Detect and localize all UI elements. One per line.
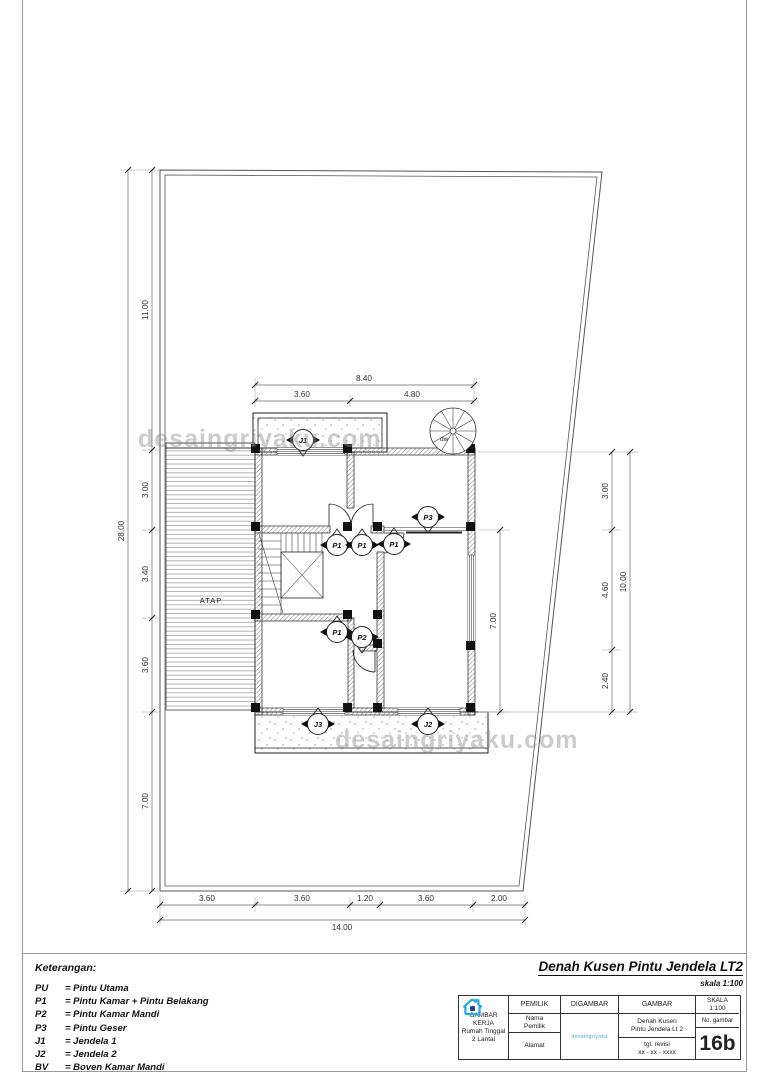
svg-text:7.00: 7.00 <box>141 793 150 809</box>
logo-text: desaingriyaku <box>571 1034 607 1040</box>
dimension-right: 3.00 4.60 2.40 10.00 <box>478 449 638 715</box>
building-walls <box>255 448 475 715</box>
legend-code: P3 <box>35 1022 65 1035</box>
owner-name-cell: Nama Pemilik <box>509 1014 560 1033</box>
svg-text:P1: P1 <box>332 541 341 550</box>
legend-item: P1= Pintu Kamar + Pintu Belakang <box>35 995 209 1008</box>
title-block-owner: PEMILIK Nama Pemilik Alamat <box>509 996 561 1059</box>
dimension-left: 28.00 11.00 3.00 3.40 3.60 7.00 <box>117 167 160 894</box>
watermark-text: desaingriyaku.com <box>335 726 578 754</box>
dimension-top: 8.40 3.60 4.80 <box>252 374 477 407</box>
drawing-sheet: { "page": { "watermark": "desaingriyaku.… <box>0 0 768 1086</box>
atap-label: ATAP <box>200 596 222 605</box>
legend-def: = Pintu Utama <box>65 982 129 995</box>
svg-text:3.00: 3.00 <box>141 482 150 498</box>
column-nodes <box>251 444 475 712</box>
drawing-scale: skala 1:100 <box>538 979 743 988</box>
dimension-bottom: 3.60 3.60 1.20 3.60 2.00 14.00 <box>157 894 528 932</box>
svg-text:7.00: 7.00 <box>489 613 498 629</box>
legend-def: = Jendela 1 <box>65 1035 117 1048</box>
title-block-number: SKALA 1:100 No. gambar 16b <box>696 996 739 1059</box>
svg-text:3.60: 3.60 <box>418 894 434 903</box>
title-block-drafter: DIGAMBAR desaingriyaku <box>561 996 619 1059</box>
marker-p3: P3 <box>411 507 445 534</box>
legend-def: = Pintu Geser <box>65 1022 127 1035</box>
svg-text:P1: P1 <box>332 628 341 637</box>
svg-text:10.00: 10.00 <box>619 571 628 592</box>
legend-code: BV <box>35 1061 65 1074</box>
legend-item: P2= Pintu Kamar Mandi <box>35 1008 209 1021</box>
scale-cell: SKALA 1:100 <box>696 996 739 1014</box>
legend-code: J1 <box>35 1035 65 1048</box>
legend-item: BV= Boven Kamar Mandi <box>35 1061 209 1074</box>
svg-text:3.60: 3.60 <box>294 390 310 399</box>
svg-text:3.40: 3.40 <box>141 566 150 582</box>
legend-def: = Pintu Kamar Mandi <box>65 1008 159 1021</box>
svg-text:3.00: 3.00 <box>601 483 610 499</box>
svg-text:4.80: 4.80 <box>404 390 420 399</box>
legend-def: = Pintu Kamar + Pintu Belakang <box>65 995 209 1008</box>
gambar-header: GAMBAR <box>619 996 695 1014</box>
legend-title: Keterangan: <box>35 962 209 974</box>
svg-text:28.00: 28.00 <box>117 520 126 541</box>
company-logo: desaingriyaku <box>561 1014 618 1059</box>
svg-text:J3: J3 <box>314 720 323 729</box>
drawing-name-cell: Denah Kusen Pintu Jendela Lt 2 <box>619 1014 695 1038</box>
legend-code: P1 <box>35 995 65 1008</box>
digambar-header: DIGAMBAR <box>561 996 618 1014</box>
watermark-text: desaingriyaku.com <box>138 425 381 453</box>
svg-text:4.60: 4.60 <box>601 582 610 598</box>
stairwell <box>258 533 323 614</box>
dimension-mid-right: 7.00 <box>478 527 510 715</box>
title-block-drawing: GAMBAR Denah Kusen Pintu Jendela Lt 2 tg… <box>619 996 696 1059</box>
svg-text:1.20: 1.20 <box>357 894 373 903</box>
project-line: 2 Lantai <box>472 1036 495 1044</box>
sheet-number: 16b <box>696 1028 739 1059</box>
pemilik-header: PEMILIK <box>509 996 560 1014</box>
svg-text:P2: P2 <box>357 633 367 642</box>
house-logo-icon <box>459 996 486 1019</box>
sheet-divider-line <box>22 953 747 954</box>
svg-text:3.60: 3.60 <box>294 894 310 903</box>
legend-def: = Boven Kamar Mandi <box>65 1061 165 1074</box>
svg-text:11.00: 11.00 <box>141 300 150 320</box>
spiral-staircase: dw <box>430 408 476 454</box>
floor-plan-canvas: ATAP <box>0 0 768 953</box>
svg-text:14.00: 14.00 <box>332 923 353 932</box>
svg-text:2.40: 2.40 <box>601 673 610 689</box>
svg-text:2.00: 2.00 <box>491 894 507 903</box>
svg-text:3.60: 3.60 <box>199 894 215 903</box>
legend-item: J2= Jendela 2 <box>35 1048 209 1061</box>
title-block: GAMBAR KERJA Rumah Tinggal 2 Lantai PEMI… <box>458 995 741 1060</box>
sheet-number-label: No. gambar <box>696 1014 739 1028</box>
spiral-stair-label: dw <box>440 436 449 443</box>
svg-text:3.60: 3.60 <box>141 657 150 673</box>
windows <box>277 448 475 715</box>
drawing-title-area: Denah Kusen Pintu Jendela LT2 skala 1:10… <box>538 958 743 988</box>
svg-text:P1: P1 <box>389 540 398 549</box>
legend-code: J2 <box>35 1048 65 1061</box>
legend-code: PU <box>35 982 65 995</box>
legend: Keterangan: PU= Pintu Utama P1= Pintu Ka… <box>35 962 209 1074</box>
project-line: Rumah Tinggal <box>462 1028 506 1036</box>
svg-text:8.40: 8.40 <box>356 374 372 383</box>
svg-text:P3: P3 <box>423 513 433 522</box>
atap-roof-area: ATAP <box>166 443 255 710</box>
svg-text:P1: P1 <box>357 541 366 550</box>
legend-item: PU= Pintu Utama <box>35 982 209 995</box>
legend-item: P3= Pintu Geser <box>35 1022 209 1035</box>
drawing-title: Denah Kusen Pintu Jendela LT2 <box>538 959 743 976</box>
legend-item: J1= Jendela 1 <box>35 1035 209 1048</box>
owner-address-cell: Alamat <box>509 1033 560 1059</box>
legend-def: = Jendela 2 <box>65 1048 117 1061</box>
revision-cell: tgl. revisi xx - xx - xxxx <box>619 1038 695 1059</box>
legend-code: P2 <box>35 1008 65 1021</box>
